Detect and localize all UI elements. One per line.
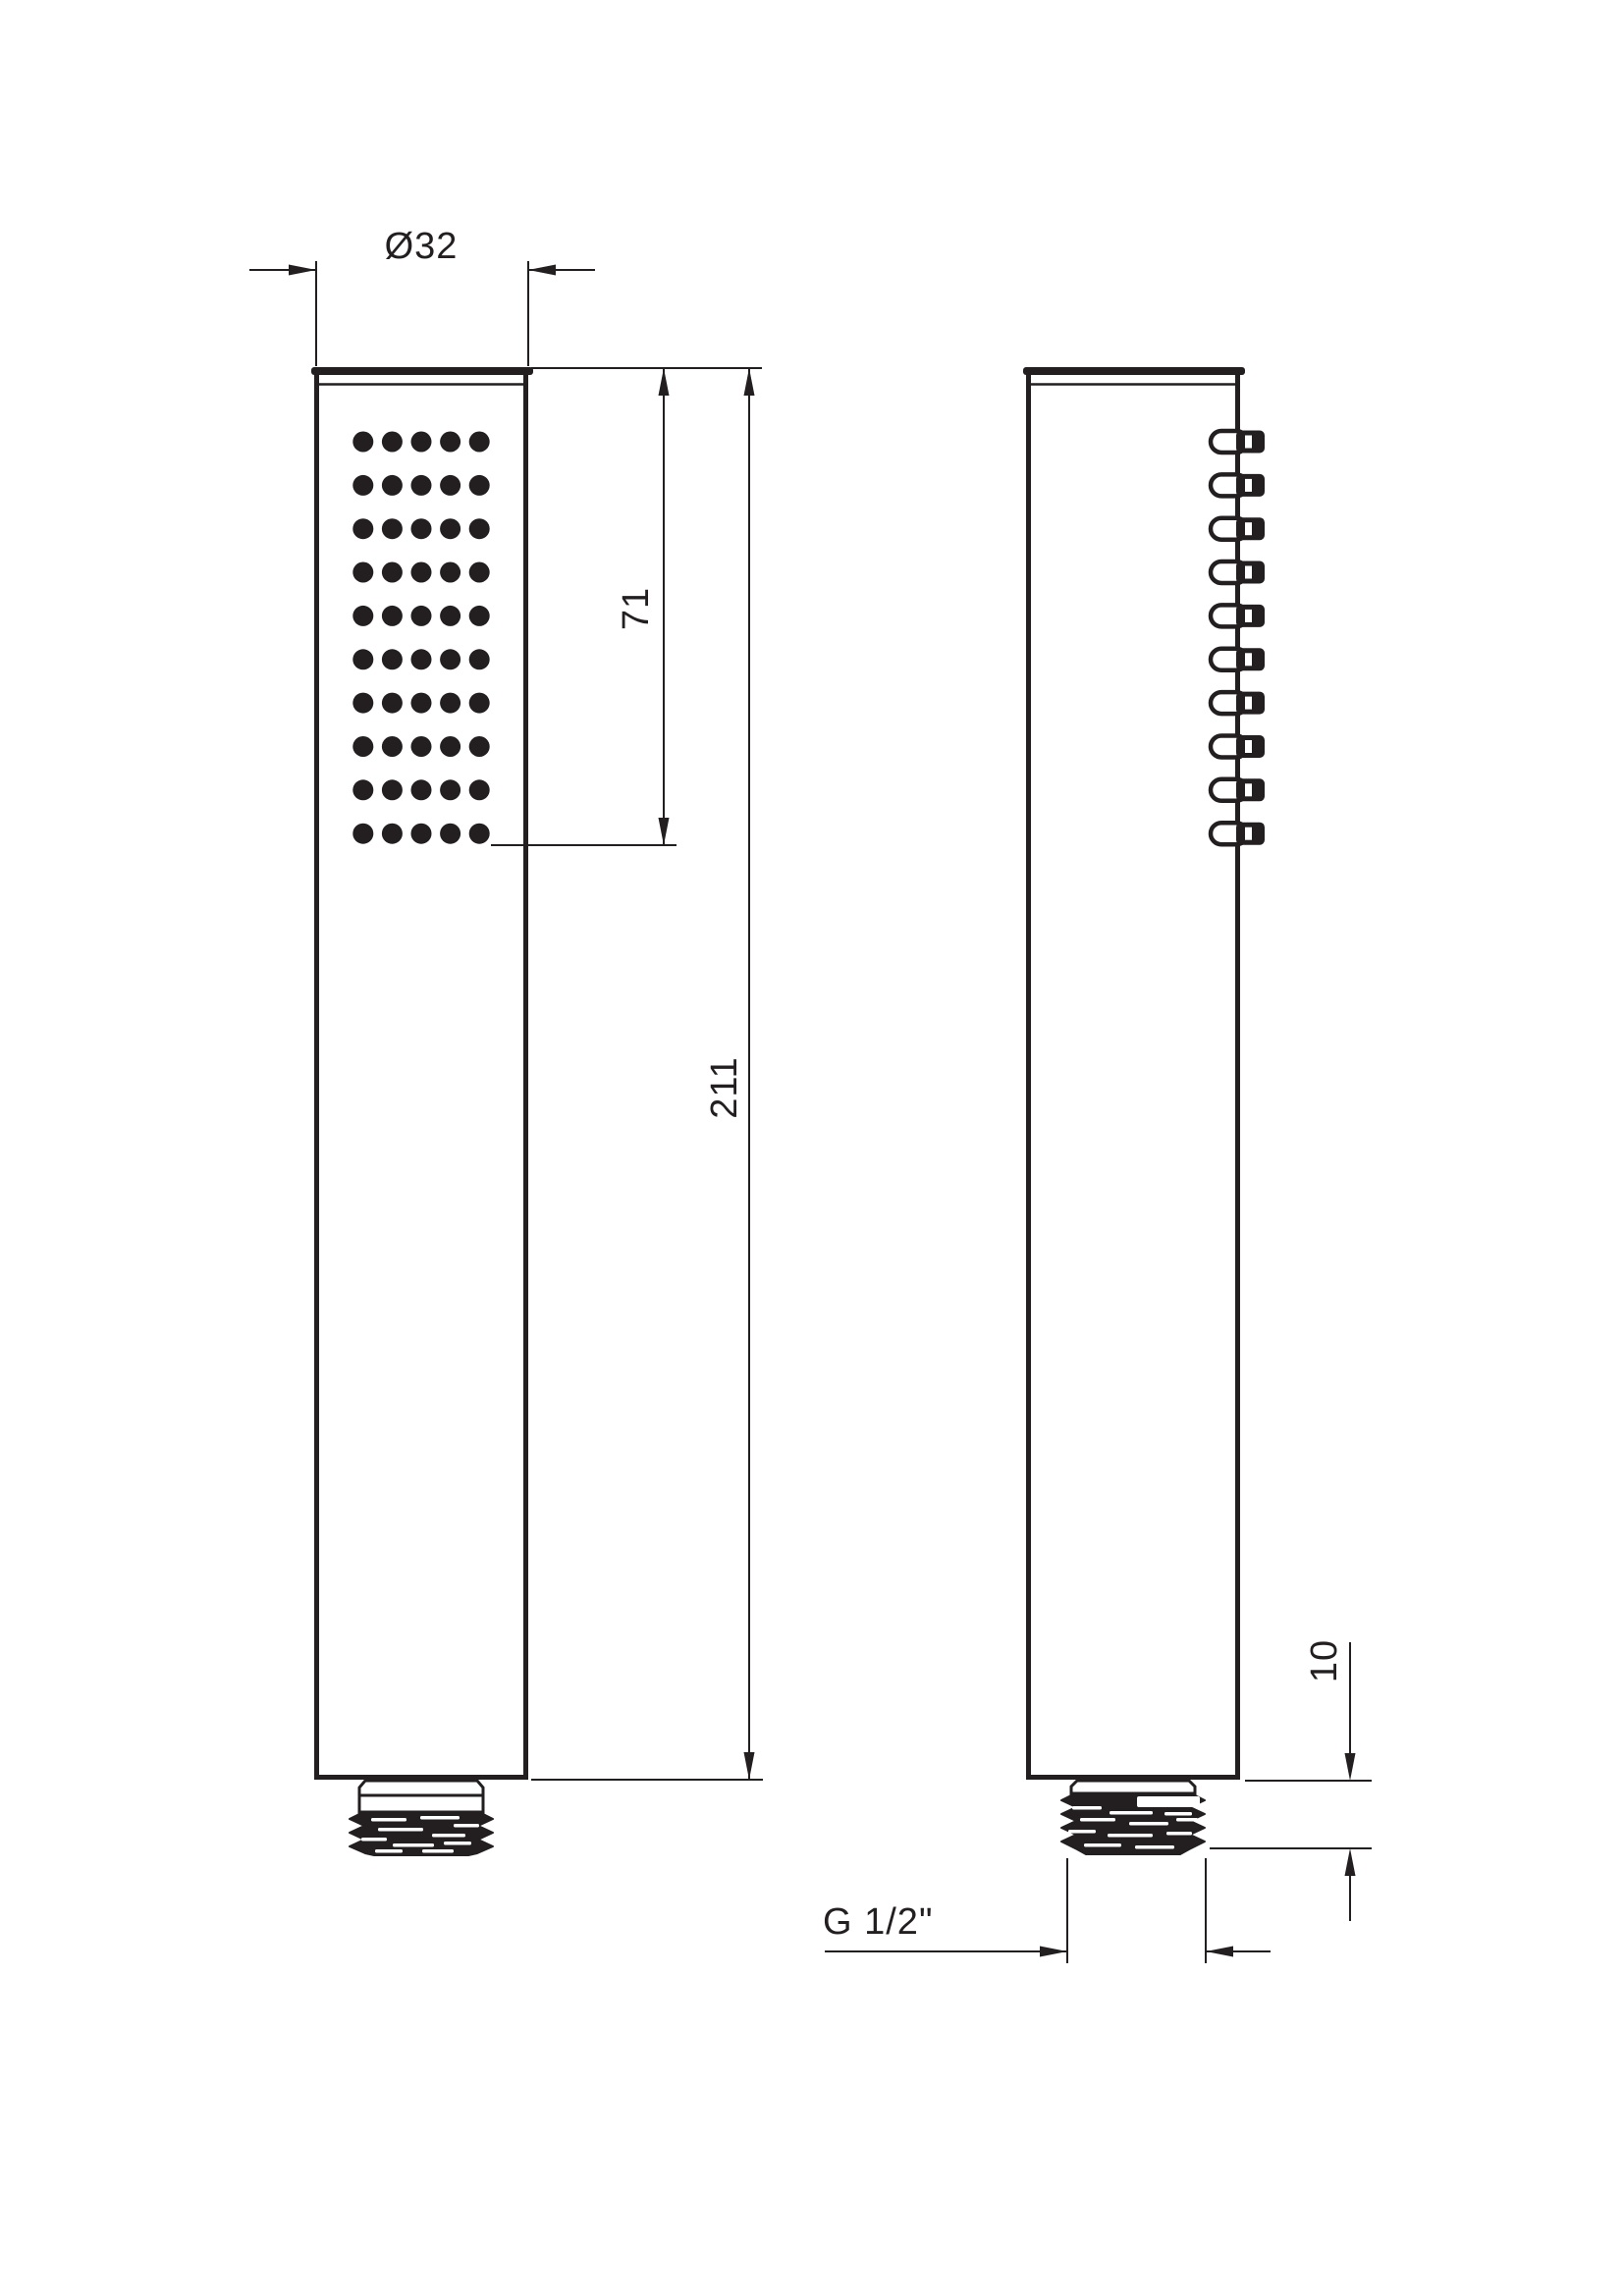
spray-dot xyxy=(411,693,432,714)
side-thread-collar xyxy=(1071,1781,1195,1793)
side-nozzle xyxy=(1211,778,1265,801)
spray-dot xyxy=(440,649,460,669)
spray-dot xyxy=(382,649,403,669)
front-thread-connector xyxy=(350,1781,493,1855)
spray-dot xyxy=(440,606,460,626)
spray-dot xyxy=(352,606,373,626)
spray-dot xyxy=(411,649,432,669)
dim-thread-type: G 1/2" xyxy=(823,1858,1271,1963)
spray-dot xyxy=(440,779,460,800)
spray-dot xyxy=(352,736,373,757)
side-body-outline xyxy=(1029,373,1238,1778)
spray-dot xyxy=(469,606,490,626)
spray-dot xyxy=(352,649,373,669)
spray-dot xyxy=(382,432,403,453)
dim-total-length: 211 xyxy=(531,368,763,1780)
dim-spray-face-length: 71 xyxy=(491,368,762,845)
arrowhead xyxy=(1206,1947,1233,1957)
front-view xyxy=(311,367,533,1855)
spray-dot xyxy=(352,518,373,539)
dim-total-length-label: 211 xyxy=(704,1056,745,1119)
spray-dot xyxy=(469,518,490,539)
arrowhead xyxy=(744,368,755,396)
side-nozzle xyxy=(1211,561,1265,584)
arrowhead xyxy=(1345,1848,1356,1876)
spray-dot xyxy=(411,475,432,496)
arrowhead xyxy=(1040,1947,1067,1957)
spray-dot xyxy=(469,432,490,453)
spray-dot xyxy=(411,779,432,800)
spray-dot xyxy=(411,824,432,844)
front-body-outline xyxy=(317,373,526,1778)
front-top-cap xyxy=(311,367,533,375)
spray-dot xyxy=(440,824,460,844)
spray-dot xyxy=(469,779,490,800)
drawing-canvas: Ø32 71 211 10 G 1/2" xyxy=(0,0,1624,2296)
spray-dot xyxy=(411,736,432,757)
arrowhead xyxy=(744,1752,755,1780)
spray-dot xyxy=(469,649,490,669)
arrowhead xyxy=(289,265,316,276)
spray-dot xyxy=(411,562,432,583)
spray-dot xyxy=(352,779,373,800)
arrowhead xyxy=(1345,1753,1356,1781)
front-thread-collar xyxy=(359,1781,483,1795)
spray-dot xyxy=(440,562,460,583)
dim-spray-face-length-label: 71 xyxy=(616,587,657,630)
arrowhead xyxy=(659,818,670,845)
spray-dot xyxy=(352,693,373,714)
spray-dot xyxy=(352,432,373,453)
arrowhead xyxy=(659,368,670,396)
side-nozzle xyxy=(1211,605,1265,627)
spray-dot xyxy=(382,824,403,844)
spray-dot xyxy=(382,779,403,800)
spray-dot xyxy=(382,736,403,757)
front-thread-band xyxy=(359,1795,483,1812)
side-top-cap xyxy=(1023,367,1245,375)
side-nozzle xyxy=(1211,648,1265,670)
dim-head-diameter: Ø32 xyxy=(249,226,595,366)
spray-dot xyxy=(382,606,403,626)
side-nozzle xyxy=(1211,823,1265,845)
spray-dot xyxy=(352,562,373,583)
spray-dot xyxy=(411,432,432,453)
dim-thread-length-label: 10 xyxy=(1304,1639,1345,1682)
side-nozzle xyxy=(1211,517,1265,540)
spray-dot xyxy=(469,693,490,714)
spray-dot xyxy=(440,475,460,496)
spray-dot xyxy=(352,824,373,844)
spray-dot xyxy=(469,824,490,844)
spray-dot xyxy=(469,736,490,757)
spray-dot xyxy=(469,475,490,496)
dim-thread-type-label: G 1/2" xyxy=(823,1901,933,1943)
side-nozzle xyxy=(1211,692,1265,715)
spray-dot xyxy=(411,518,432,539)
dim-head-diameter-label: Ø32 xyxy=(385,226,459,267)
spray-dot xyxy=(352,475,373,496)
arrowhead xyxy=(528,265,556,276)
side-nozzle xyxy=(1211,735,1265,758)
technical-drawing: Ø32 71 211 10 G 1/2" xyxy=(0,0,1624,2296)
spray-dot xyxy=(382,562,403,583)
spray-dot xyxy=(382,518,403,539)
side-view xyxy=(1023,367,1265,1854)
spray-dot xyxy=(382,693,403,714)
spray-dot xyxy=(440,693,460,714)
spray-dot xyxy=(440,736,460,757)
spray-dot xyxy=(440,518,460,539)
spray-dot xyxy=(382,475,403,496)
side-thread-connector xyxy=(1061,1781,1205,1854)
side-nozzle xyxy=(1211,474,1265,497)
spray-dot xyxy=(469,562,490,583)
spray-dot xyxy=(411,606,432,626)
spray-dot xyxy=(440,432,460,453)
side-nozzle xyxy=(1211,431,1265,454)
